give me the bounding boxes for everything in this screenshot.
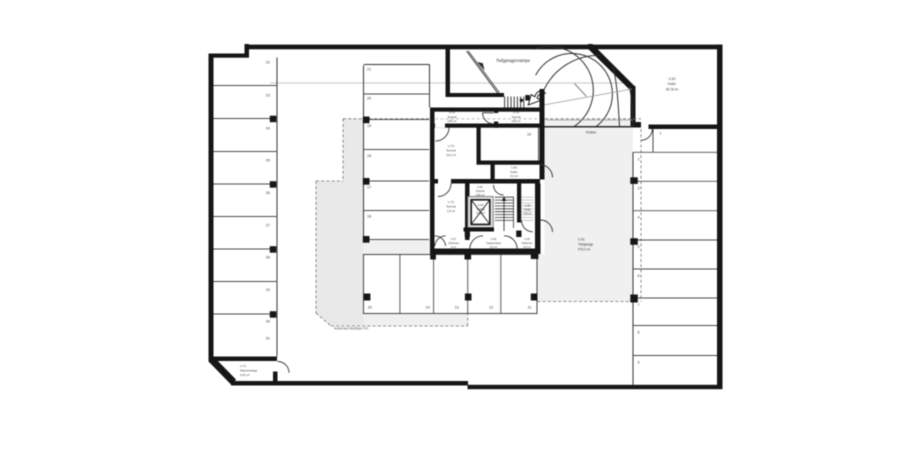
svg-text:27: 27 bbox=[266, 224, 270, 228]
svg-text:Schleuse: Schleuse bbox=[448, 241, 459, 245]
svg-text:4: 4 bbox=[638, 216, 640, 220]
svg-text:30: 30 bbox=[266, 320, 270, 324]
svg-text:4,5 m²: 4,5 m² bbox=[524, 212, 531, 216]
svg-text:4,10 m²: 4,10 m² bbox=[476, 211, 485, 215]
svg-text:45,78 m²: 45,78 m² bbox=[666, 87, 679, 91]
svg-text:4,20 m²: 4,20 m² bbox=[240, 373, 250, 377]
svg-text:20: 20 bbox=[367, 97, 371, 101]
svg-text:Keller: Keller bbox=[668, 82, 677, 86]
svg-text:22: 22 bbox=[266, 61, 270, 65]
svg-text:16: 16 bbox=[367, 215, 371, 219]
svg-text:U.75: U.75 bbox=[513, 111, 519, 115]
svg-text:9: 9 bbox=[638, 361, 640, 365]
svg-text:Aufzug: Aufzug bbox=[476, 207, 485, 211]
svg-text:Rolltor: Rolltor bbox=[586, 130, 597, 134]
svg-text:Treppenhaus: Treppenhaus bbox=[486, 241, 502, 245]
svg-text:4,2 m²: 4,2 m² bbox=[510, 174, 518, 178]
svg-text:Keller: Keller bbox=[524, 208, 531, 212]
svg-text:U.74: U.74 bbox=[449, 111, 455, 115]
svg-text:14: 14 bbox=[426, 306, 430, 310]
svg-text:8: 8 bbox=[638, 331, 640, 335]
svg-text:7: 7 bbox=[638, 303, 640, 307]
svg-text:Autokrane Bauflayer KG: Autokrane Bauflayer KG bbox=[334, 327, 369, 331]
svg-text:Technik: Technik bbox=[476, 189, 485, 193]
svg-text:21: 21 bbox=[367, 68, 371, 72]
svg-text:11: 11 bbox=[528, 306, 532, 310]
svg-text:17: 17 bbox=[367, 186, 371, 190]
svg-text:1: 1 bbox=[660, 132, 662, 136]
svg-text:U.61: U.61 bbox=[578, 238, 585, 242]
svg-text:4,90 m²: 4,90 m² bbox=[511, 119, 520, 123]
svg-text:U.69: U.69 bbox=[525, 204, 531, 208]
svg-text:975,0 m²: 975,0 m² bbox=[578, 247, 591, 251]
svg-text:10: 10 bbox=[527, 133, 531, 137]
svg-text:3: 3 bbox=[638, 187, 640, 191]
svg-text:31: 31 bbox=[266, 337, 270, 341]
svg-text:U.73: U.73 bbox=[448, 144, 454, 148]
svg-text:Waschanlage: Waschanlage bbox=[240, 368, 258, 372]
svg-text:U.67: U.67 bbox=[451, 237, 457, 241]
svg-text:U.71: U.71 bbox=[240, 364, 246, 368]
svg-text:U.64: U.64 bbox=[478, 203, 484, 207]
svg-text:29: 29 bbox=[266, 288, 270, 292]
svg-text:Technik: Technik bbox=[447, 115, 457, 119]
svg-text:28: 28 bbox=[266, 256, 270, 260]
svg-text:25: 25 bbox=[266, 159, 270, 163]
svg-text:0,80 m²: 0,80 m² bbox=[447, 119, 456, 123]
svg-text:23: 23 bbox=[266, 94, 270, 98]
svg-text:13: 13 bbox=[455, 306, 459, 310]
svg-text:Technik: Technik bbox=[511, 115, 521, 119]
svg-text:19: 19 bbox=[367, 124, 371, 128]
svg-text:U.62: U.62 bbox=[477, 185, 483, 189]
svg-text:Tiefgaragenrampe: Tiefgaragenrampe bbox=[496, 58, 531, 63]
svg-text:15: 15 bbox=[368, 306, 372, 310]
svg-text:U.66: U.66 bbox=[491, 237, 497, 241]
svg-text:5: 5 bbox=[638, 245, 640, 249]
svg-text:Tiefgarage: Tiefgarage bbox=[578, 242, 593, 246]
svg-text:5,2 m²: 5,2 m² bbox=[490, 245, 497, 249]
svg-text:U.65: U.65 bbox=[524, 237, 530, 241]
svg-text:3 m²: 3 m² bbox=[451, 245, 456, 249]
svg-text:Technik: Technik bbox=[446, 205, 456, 209]
svg-text:Technik: Technik bbox=[446, 149, 456, 153]
svg-text:1,8 m²: 1,8 m² bbox=[447, 209, 455, 213]
svg-text:12: 12 bbox=[489, 306, 493, 310]
svg-text:Schleuse: Schleuse bbox=[522, 241, 533, 245]
svg-text:4,6 m²: 4,6 m² bbox=[523, 245, 530, 249]
svg-text:24: 24 bbox=[266, 127, 270, 131]
svg-text:6: 6 bbox=[638, 274, 640, 278]
svg-text:U.63: U.63 bbox=[669, 77, 676, 81]
svg-text:26: 26 bbox=[266, 191, 270, 195]
svg-text:18: 18 bbox=[367, 154, 371, 158]
svg-text:16,2 m²: 16,2 m² bbox=[446, 153, 456, 157]
svg-text:2: 2 bbox=[638, 158, 640, 162]
svg-text:U.72: U.72 bbox=[448, 200, 454, 204]
